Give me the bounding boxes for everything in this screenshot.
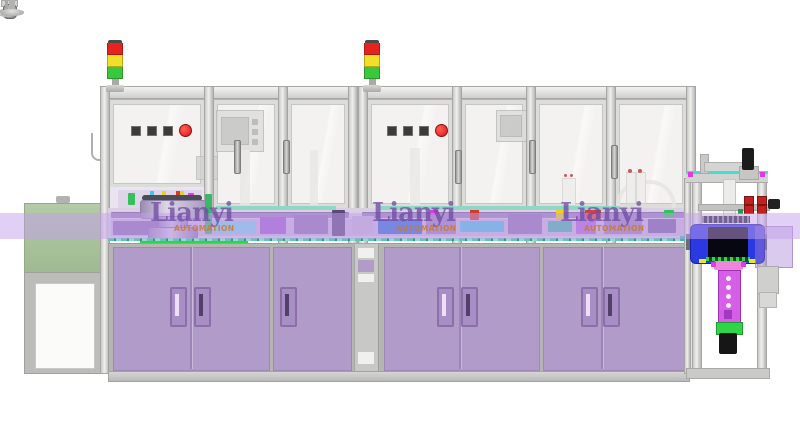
watermark-brand: Lianyi bbox=[372, 200, 456, 226]
watermark: Lianyi AUTOMATION bbox=[560, 200, 644, 233]
watermark: Lianyi AUTOMATION bbox=[372, 200, 456, 233]
watermark: Lianyi AUTOMATION bbox=[150, 200, 234, 233]
scene: Lianyi AUTOMATION Lianyi AUTOMATION Lian… bbox=[0, 0, 800, 438]
watermark-layer: Lianyi AUTOMATION Lianyi AUTOMATION Lian… bbox=[0, 0, 800, 438]
watermark-brand: Lianyi bbox=[150, 200, 234, 226]
watermark-subtitle: AUTOMATION bbox=[396, 224, 456, 233]
watermark-brand: Lianyi bbox=[560, 200, 644, 226]
watermark-subtitle: AUTOMATION bbox=[174, 224, 234, 233]
watermark-subtitle: AUTOMATION bbox=[584, 224, 644, 233]
